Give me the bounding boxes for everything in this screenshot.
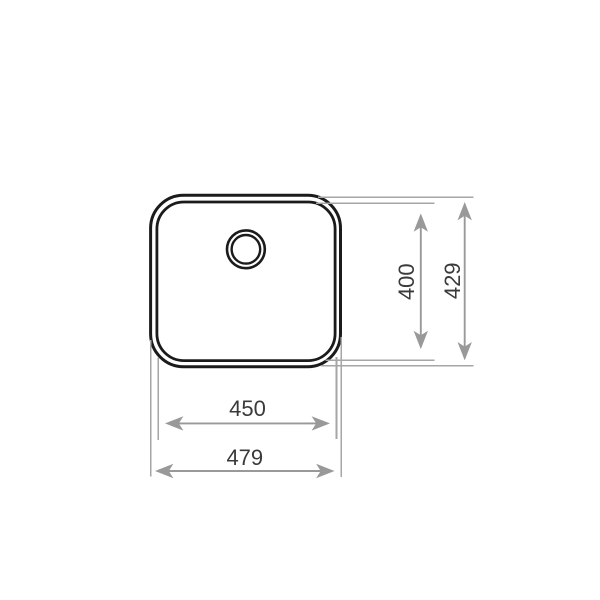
svg-text:400: 400 xyxy=(394,263,419,300)
svg-text:450: 450 xyxy=(229,396,266,421)
svg-text:479: 479 xyxy=(226,445,263,470)
svg-text:429: 429 xyxy=(440,262,465,299)
